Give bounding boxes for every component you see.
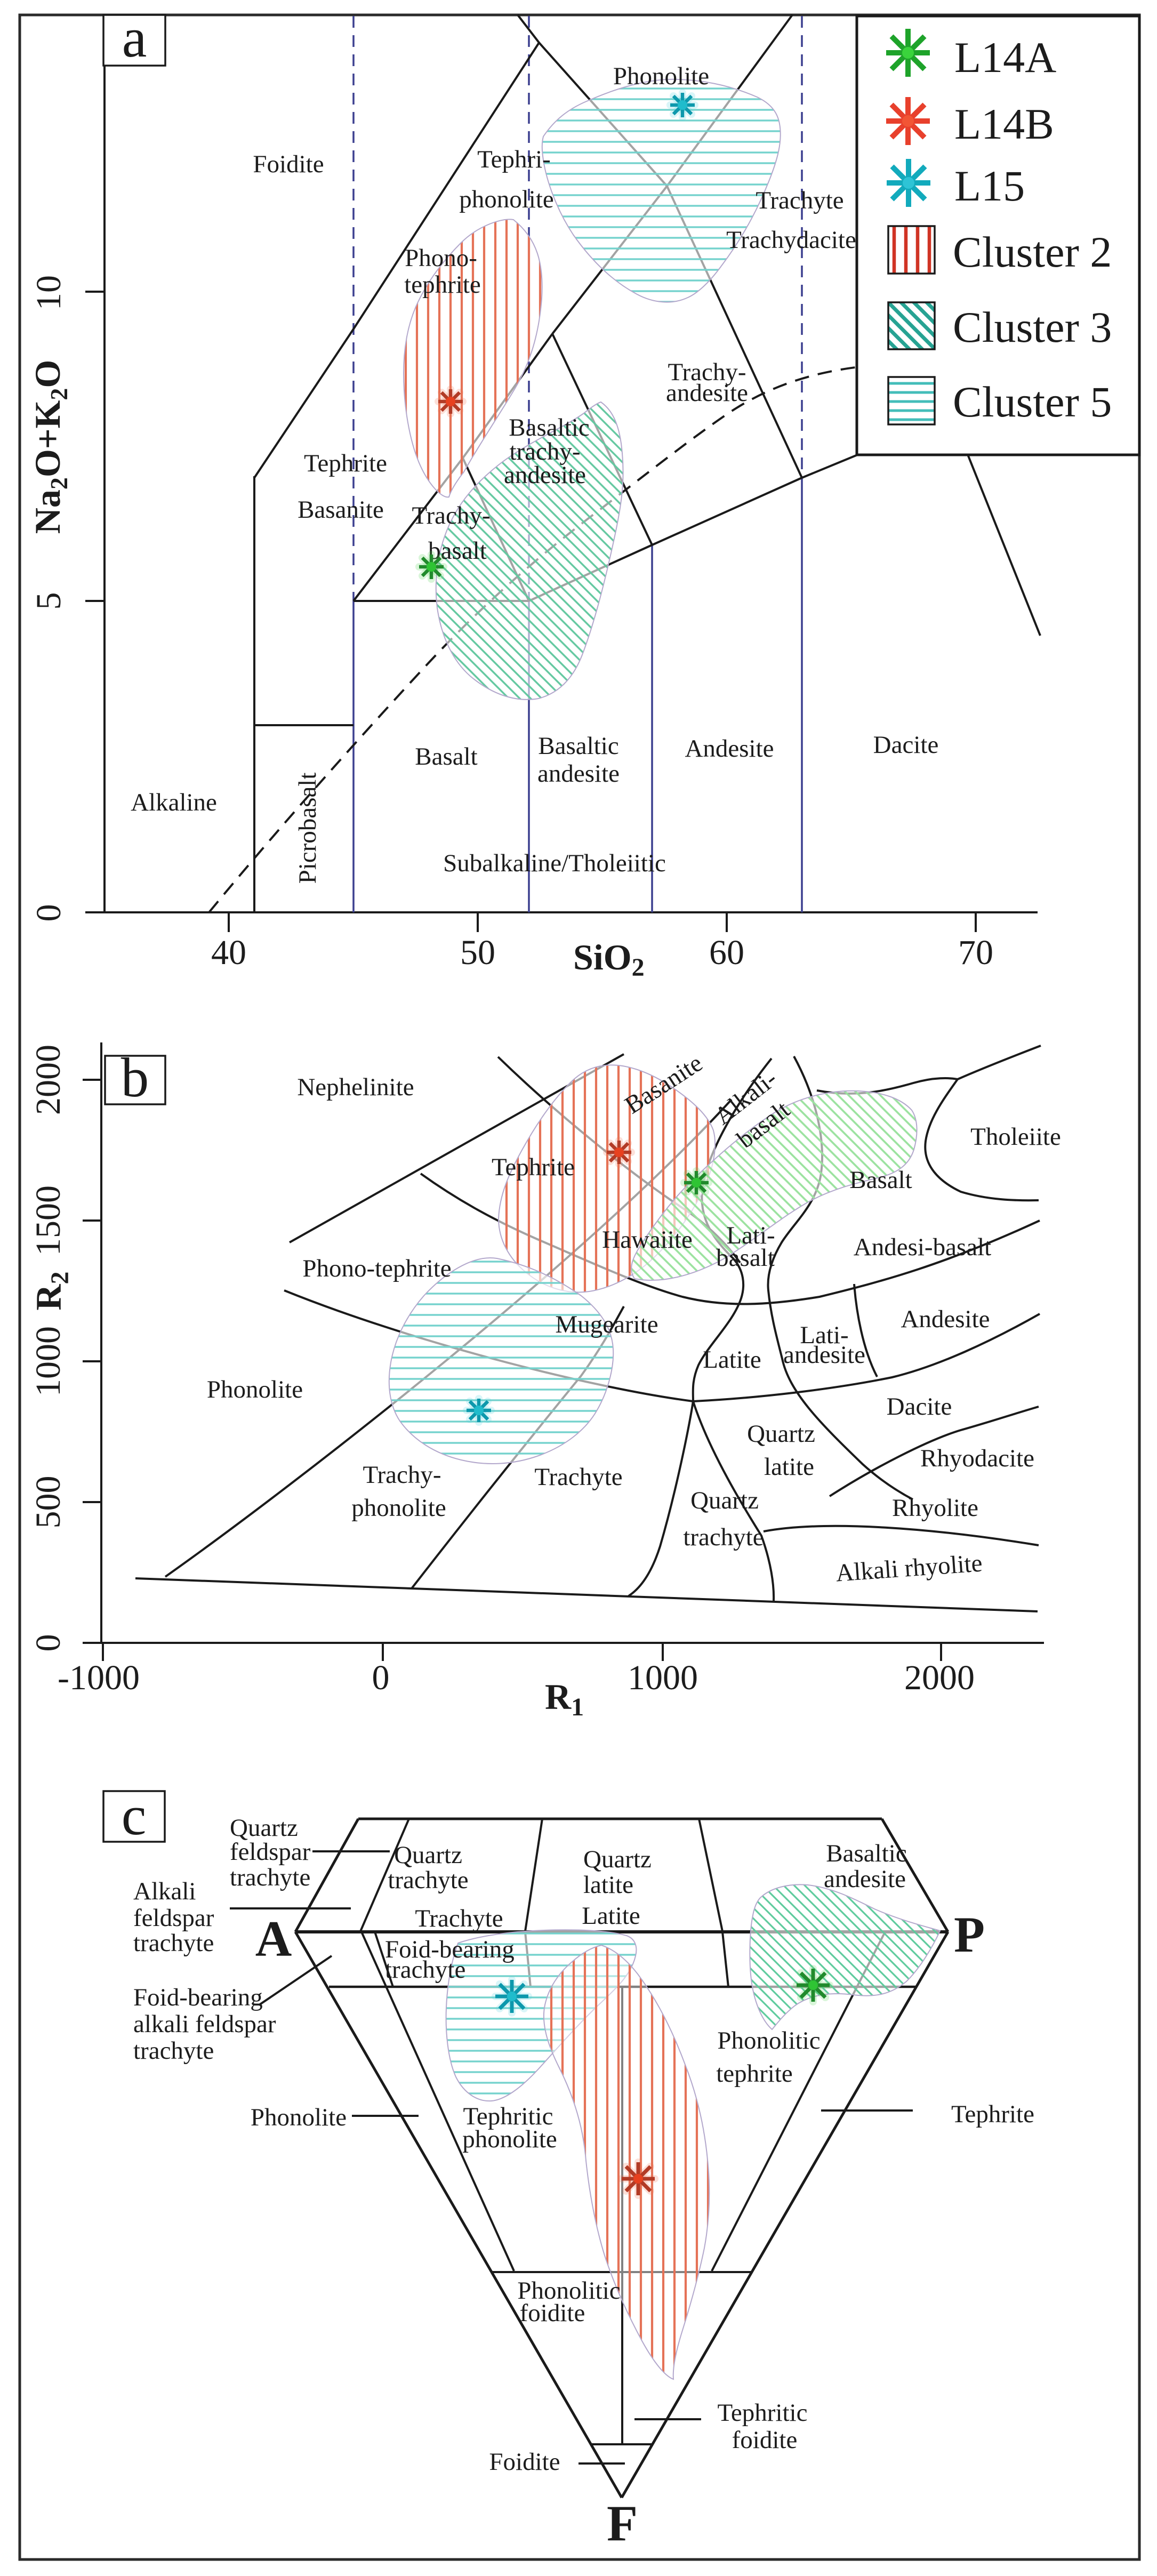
svg-text:Quartz: Quartz [394,1841,462,1869]
svg-text:Cluster 3: Cluster 3 [953,303,1112,351]
svg-text:andesite: andesite [537,760,620,788]
svg-text:Tholeiite: Tholeiite [970,1123,1061,1151]
svg-text:a: a [122,6,147,69]
svg-text:0: 0 [29,1634,68,1652]
svg-text:Basalt: Basalt [415,743,477,771]
svg-text:trachyte: trachyte [385,1956,465,1984]
svg-text:0: 0 [372,1658,390,1697]
svg-text:40: 40 [211,933,246,972]
svg-text:Andesi-basalt: Andesi-basalt [854,1233,991,1261]
svg-text:Picrobasalt: Picrobasalt [294,773,322,884]
svg-text:500: 500 [29,1476,68,1529]
svg-text:Tephritic: Tephritic [718,2399,808,2427]
svg-text:Rhyodacite: Rhyodacite [920,1445,1034,1472]
svg-text:Quartz: Quartz [747,1420,815,1448]
svg-text:Trachy-: Trachy- [412,502,490,529]
svg-text:Rhyolite: Rhyolite [892,1494,978,1522]
svg-text:Alkali rhyolite: Alkali rhyolite [835,1549,983,1587]
svg-text:Foidite: Foidite [253,150,324,178]
svg-text:phonolite: phonolite [351,1494,446,1522]
svg-text:phonolite: phonolite [459,186,554,213]
svg-text:F: F [607,2495,638,2551]
svg-text:Na2O+K2O: Na2O+K2O [27,360,73,534]
svg-text:Foid-bearing: Foid-bearing [133,1984,263,2011]
svg-text:Phono-: Phono- [405,244,477,272]
svg-text:Quartz: Quartz [583,1845,652,1873]
svg-text:Dacite: Dacite [887,1393,952,1421]
svg-text:andesite: andesite [783,1341,865,1369]
svg-text:Quartz: Quartz [690,1487,759,1514]
svg-text:2000: 2000 [904,1658,975,1697]
svg-text:Trachydacite: Trachydacite [726,226,856,254]
svg-text:phonolite: phonolite [462,2125,557,2153]
svg-text:Andesite: Andesite [685,735,774,763]
svg-text:L14B: L14B [954,100,1054,148]
svg-text:Basaltic: Basaltic [826,1840,906,1867]
svg-text:trachyte: trachyte [230,1864,310,1891]
svg-text:Trachyte: Trachyte [534,1463,622,1491]
svg-text:tephrite: tephrite [716,2060,793,2088]
svg-text:Phono-tephrite: Phono-tephrite [302,1255,451,1282]
svg-text:R2: R2 [28,1271,74,1310]
svg-text:andesite: andesite [824,1865,906,1893]
svg-text:feldspar: feldspar [230,1838,311,1866]
svg-text:trachyte: trachyte [133,1929,214,1957]
svg-text:5: 5 [29,592,68,610]
svg-text:60: 60 [709,933,744,972]
svg-text:Dacite: Dacite [873,731,939,759]
svg-text:latite: latite [583,1871,633,1899]
svg-text:1000: 1000 [29,1326,68,1397]
svg-text:Cluster 2: Cluster 2 [953,228,1112,276]
svg-text:Phonolite: Phonolite [207,1376,303,1403]
svg-text:basalt: basalt [716,1244,775,1272]
svg-text:-1000: -1000 [58,1658,140,1697]
svg-text:Tephri-: Tephri- [477,146,551,173]
svg-text:Basaltic: Basaltic [538,732,618,760]
svg-text:Tephrite: Tephrite [304,450,387,477]
svg-text:foidite: foidite [732,2426,798,2454]
svg-text:trachyte: trachyte [388,1866,468,1894]
svg-text:Latite: Latite [703,1346,761,1374]
svg-text:SiO2: SiO2 [573,937,645,982]
svg-text:2000: 2000 [29,1045,68,1115]
svg-text:Andesite: Andesite [901,1305,990,1333]
svg-text:alkali feldspar: alkali feldspar [133,2010,276,2038]
svg-text:trachyte: trachyte [133,2037,214,2065]
svg-text:A: A [255,1911,292,1967]
svg-text:70: 70 [958,933,993,972]
svg-text:Phonolite: Phonolite [251,2104,347,2131]
svg-text:foidite: foidite [520,2299,585,2327]
svg-text:P: P [954,1906,985,1963]
svg-text:andesite: andesite [666,379,748,407]
svg-text:c: c [122,1784,147,1847]
svg-text:Alkaline: Alkaline [131,789,217,816]
svg-text:L15: L15 [954,162,1025,210]
svg-text:andesite: andesite [504,461,586,489]
svg-text:Phonolite: Phonolite [613,62,709,90]
svg-text:Latite: Latite [582,1902,640,1930]
svg-text:Basanite: Basanite [298,496,384,524]
svg-text:Hawaiite: Hawaiite [602,1226,693,1254]
svg-text:Tephrite: Tephrite [951,2100,1034,2128]
svg-text:Trachyte: Trachyte [415,1905,503,1932]
svg-text:10: 10 [29,275,68,310]
svg-text:Subalkaline/Tholeiitic: Subalkaline/Tholeiitic [443,849,666,877]
svg-text:Phonolitic: Phonolitic [717,2027,820,2055]
svg-text:Cluster 5: Cluster 5 [953,378,1112,426]
svg-text:1500: 1500 [29,1185,68,1256]
svg-text:R1: R1 [545,1676,584,1721]
svg-text:Mugearite: Mugearite [555,1311,658,1338]
svg-text:feldspar: feldspar [133,1904,214,1932]
svg-text:50: 50 [460,933,495,972]
svg-text:0: 0 [29,904,68,922]
svg-text:Tephrite: Tephrite [492,1153,575,1181]
svg-text:Nephelinite: Nephelinite [297,1073,414,1101]
svg-text:Foidite: Foidite [489,2448,560,2476]
svg-text:b: b [121,1046,149,1109]
svg-text:Trachy-: Trachy- [363,1461,441,1489]
svg-text:L14A: L14A [954,33,1056,82]
svg-text:1000: 1000 [628,1658,698,1697]
svg-text:Basalt: Basalt [849,1166,912,1194]
svg-text:Alkali: Alkali [133,1877,196,1905]
svg-text:Trachyte: Trachyte [756,187,843,214]
svg-text:tephrite: tephrite [404,271,481,299]
svg-text:latite: latite [764,1453,814,1481]
svg-text:trachyte: trachyte [683,1523,764,1551]
